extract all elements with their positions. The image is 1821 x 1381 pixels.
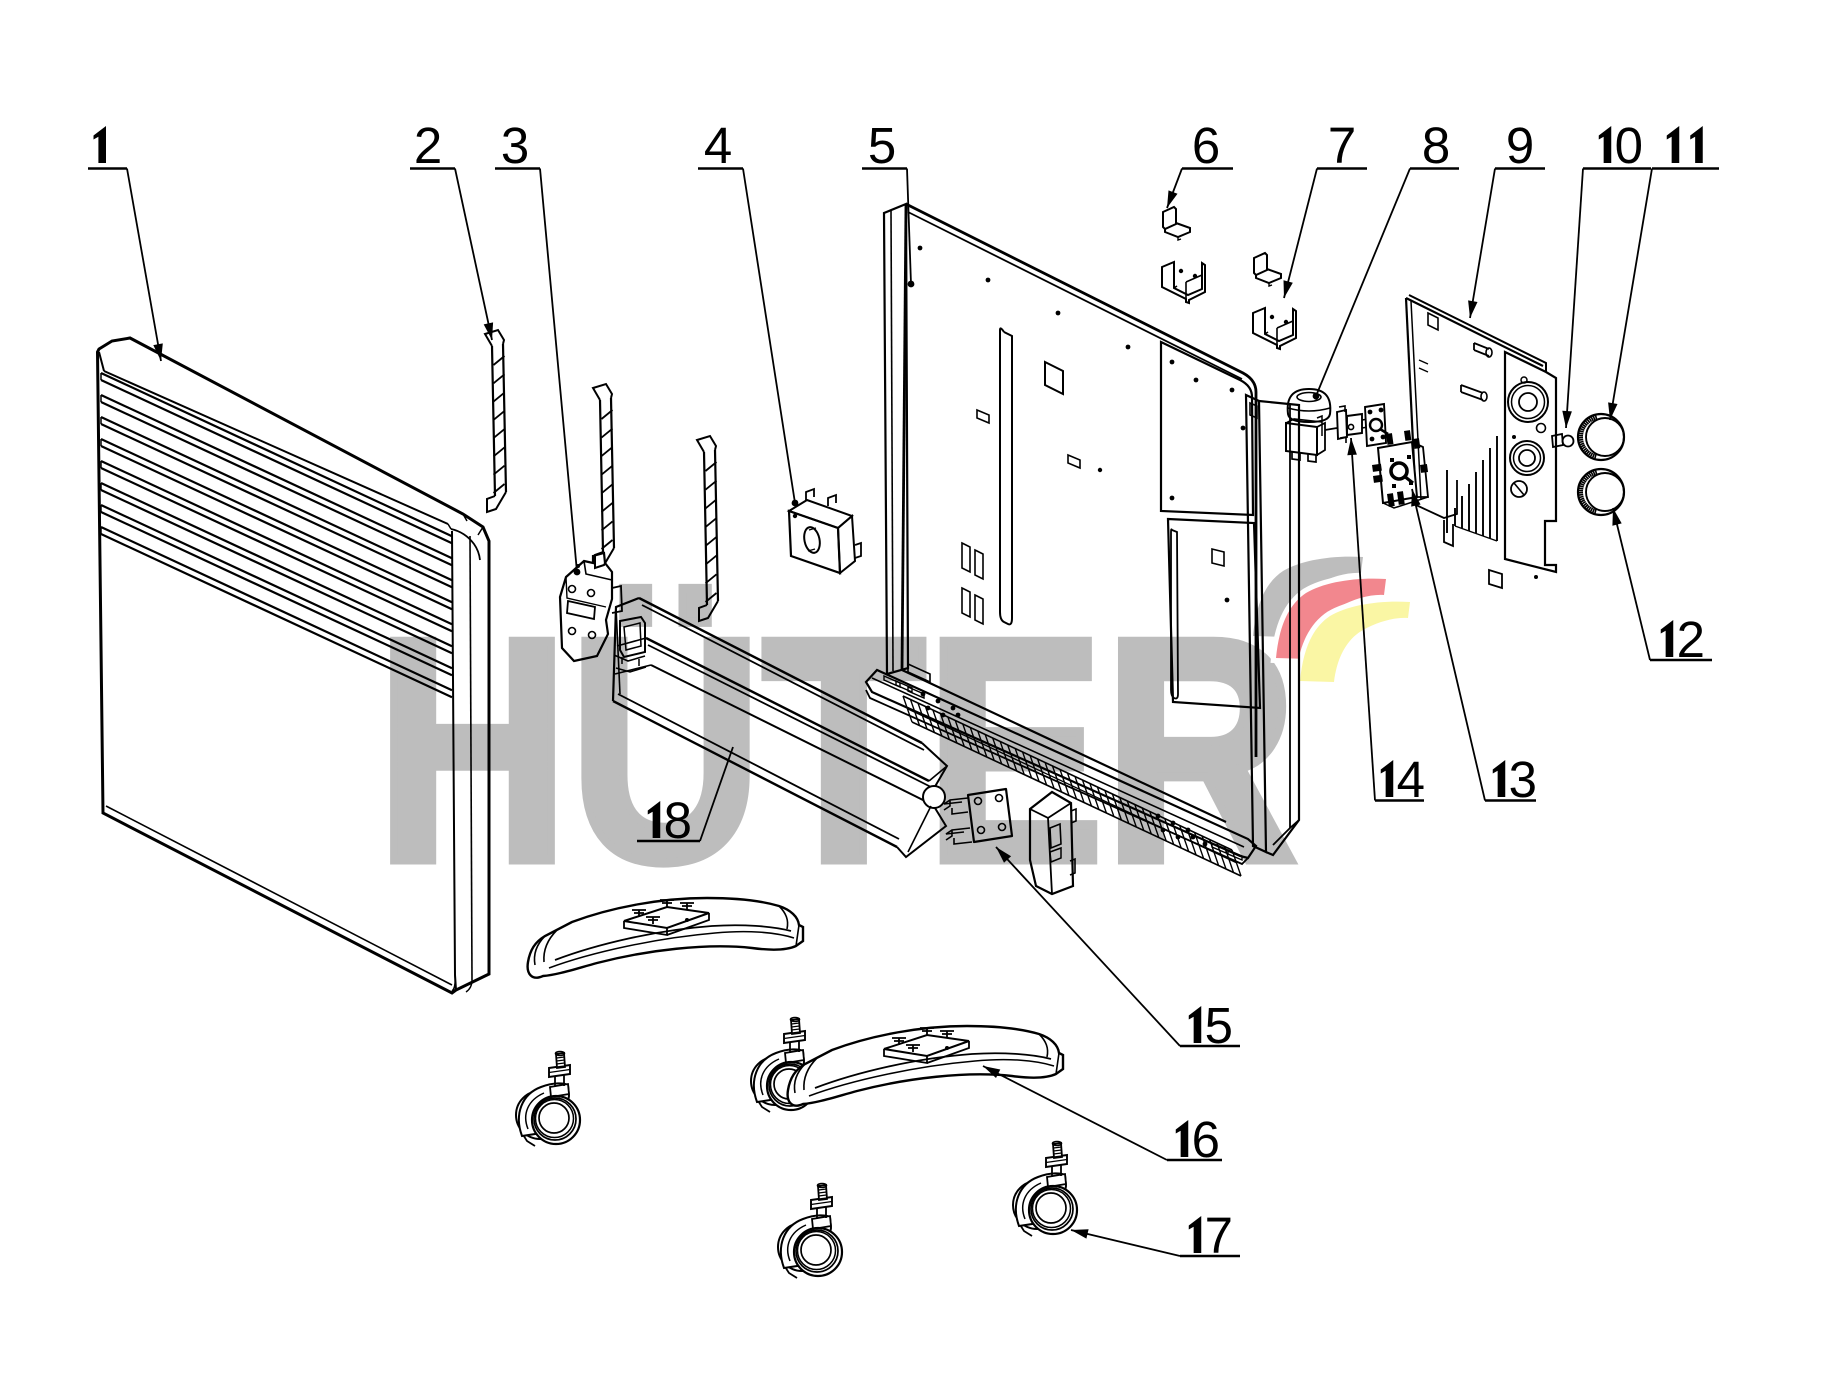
svg-text:5: 5 (868, 117, 896, 174)
svg-text:9: 9 (1506, 117, 1534, 174)
svg-text:4: 4 (704, 117, 732, 174)
svg-text:7: 7 (1328, 117, 1356, 174)
svg-text:0: 0 (1615, 117, 1643, 174)
svg-text:3: 3 (501, 117, 529, 174)
svg-text:6: 6 (1192, 117, 1220, 174)
svg-text:8: 8 (1422, 117, 1450, 174)
svg-text:HÜTER: HÜTER (376, 573, 1297, 928)
svg-text:2: 2 (414, 117, 442, 174)
